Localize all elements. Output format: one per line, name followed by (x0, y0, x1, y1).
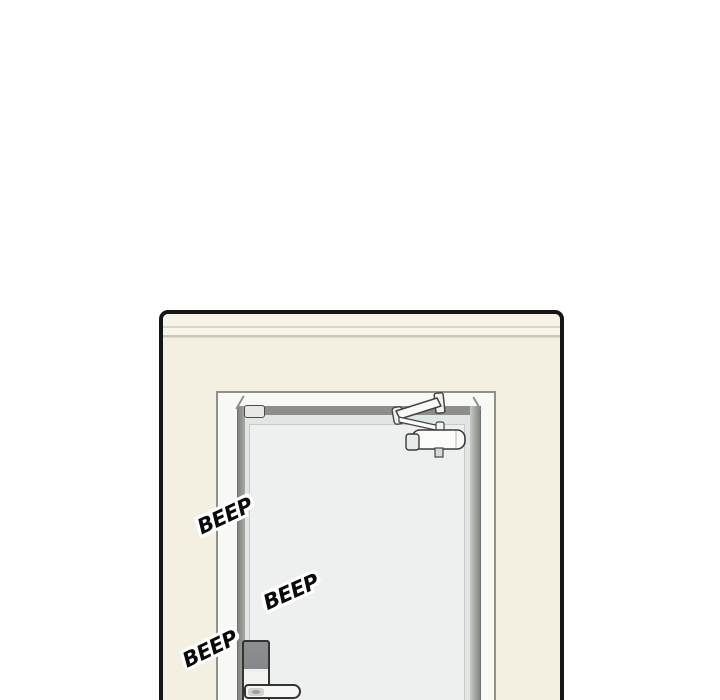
comic-panel: BEEP BEEP BEEP (159, 310, 564, 700)
handle-boss (248, 688, 264, 696)
handle-keyhole (252, 690, 260, 694)
door-handle (244, 684, 301, 699)
door-closer (385, 385, 475, 463)
comic-page: BEEP BEEP BEEP (0, 0, 720, 700)
door-inner-panel (249, 424, 465, 700)
hinge-stop (244, 405, 265, 418)
door-closer-icon (385, 385, 475, 463)
crown-molding (163, 314, 560, 340)
